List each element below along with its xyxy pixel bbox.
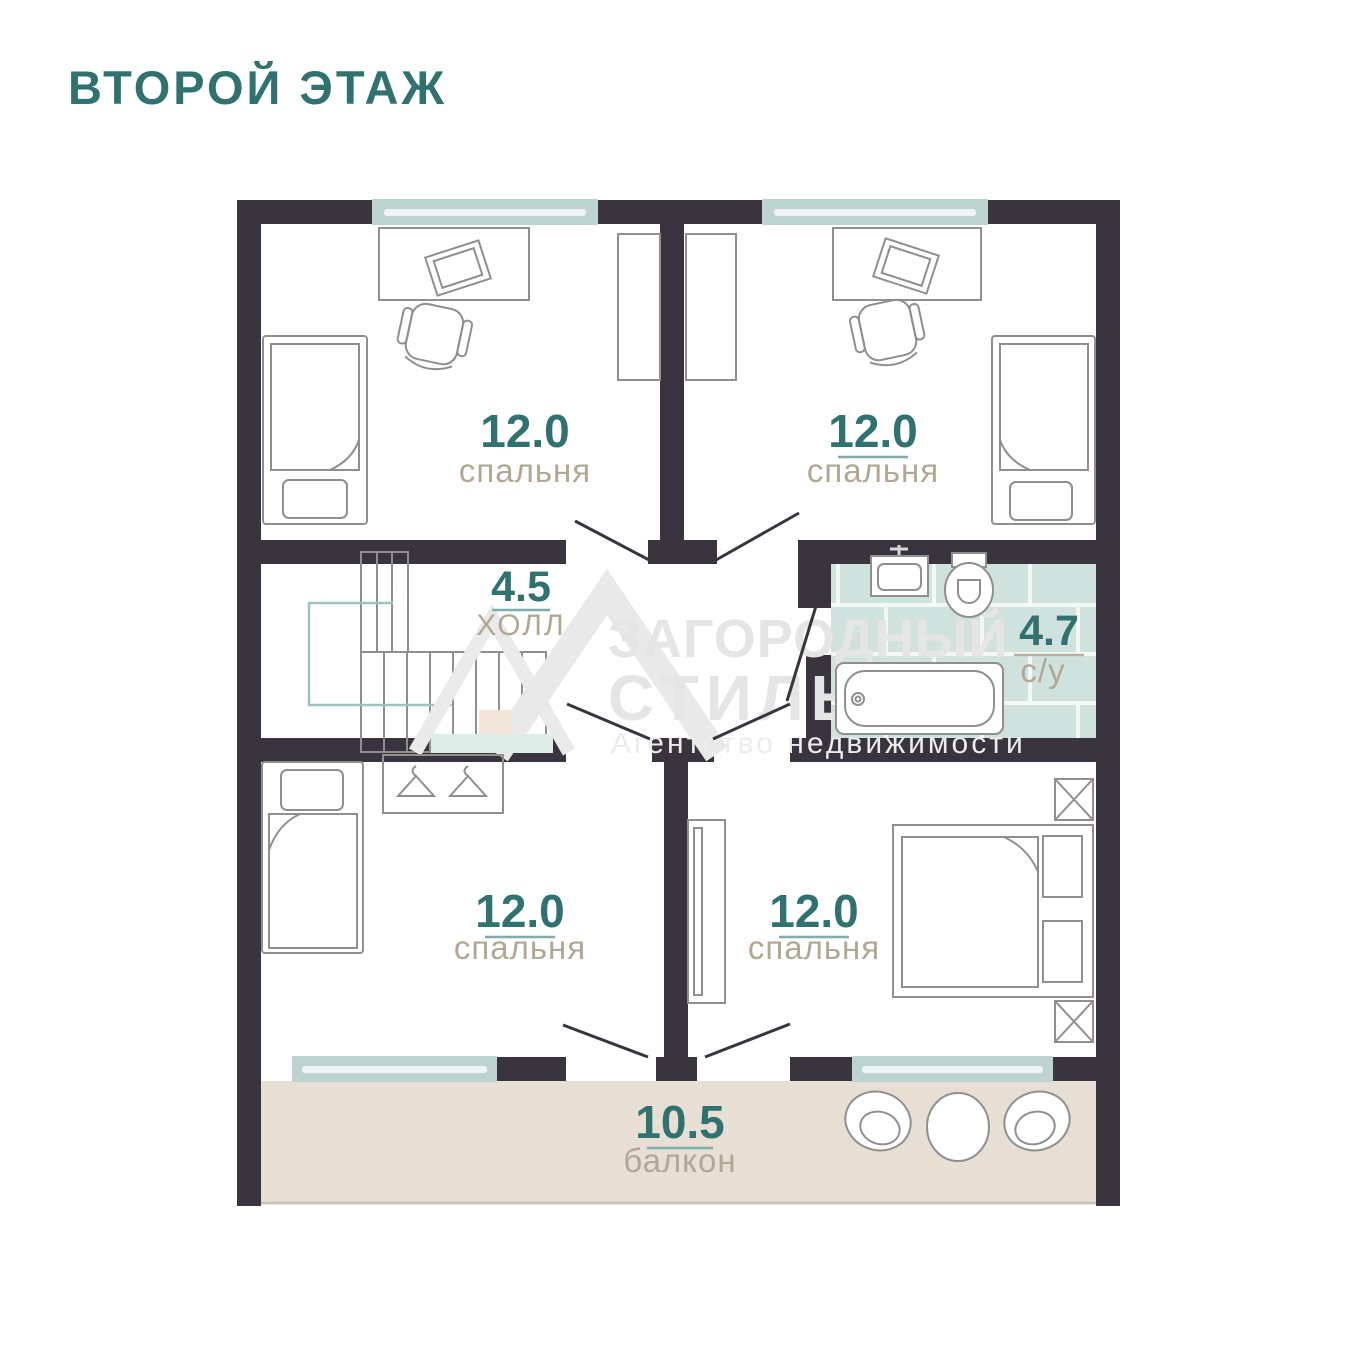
bedroom-bottom-right-furniture — [688, 779, 1093, 1042]
watermark-brand-line1: ЗАГОРОДНЫЙ — [608, 608, 1008, 669]
hanger-rack-icon — [383, 755, 503, 813]
wall-bottom-middle — [664, 762, 688, 1058]
double-bed-icon — [893, 825, 1093, 997]
crossed-box-icon — [1055, 779, 1093, 820]
window-top-left — [372, 199, 598, 225]
bathtub-icon — [836, 663, 1003, 734]
balcony-table-icon — [927, 1093, 989, 1161]
door-balcony-right — [705, 1024, 790, 1057]
room-name-label: с/у — [1020, 652, 1065, 689]
watermark-base-shape — [431, 734, 553, 753]
office-chair-icon — [393, 299, 475, 375]
wardrobe-icon — [688, 820, 725, 1003]
wall-right — [1096, 200, 1120, 1206]
desk-icon — [379, 228, 529, 300]
door-balcony-left — [563, 1025, 648, 1057]
laptop-icon — [873, 238, 939, 293]
wall-top-middle-stub — [648, 540, 717, 564]
single-bed-icon — [262, 762, 363, 953]
door-top-right-bedroom — [716, 513, 799, 560]
window-bottom-left — [292, 1056, 497, 1082]
single-bed-icon — [992, 336, 1095, 524]
room-area-label: 4.7 — [1019, 607, 1079, 655]
room-name-label: спальня — [459, 452, 591, 489]
room-name-label: балкон — [623, 1142, 736, 1179]
label-bedroom-top-left: 12.0 спальня — [459, 405, 591, 489]
nightstand — [1043, 921, 1082, 982]
room-area-label: 12.0 — [828, 405, 918, 457]
window-top-right — [762, 199, 988, 225]
nightstand — [1043, 836, 1082, 897]
room-area-label: 4.5 — [491, 563, 551, 611]
label-bedroom-bottom-left: 12.0 спальня — [454, 885, 586, 966]
balcony-furniture — [838, 1083, 1078, 1161]
floor-plan-page: ВТОРОЙ ЭТАЖ — [0, 0, 1355, 1355]
label-hall: 4.5 ХОЛЛ — [476, 563, 565, 642]
laptop-icon — [425, 240, 491, 295]
room-name-label: спальня — [454, 929, 586, 966]
label-bedroom-top-right: 12.0 спальня — [807, 405, 939, 489]
room-area-label: 10.5 — [635, 1096, 725, 1148]
desk-icon — [833, 228, 981, 300]
room-area-label: 12.0 — [480, 405, 570, 457]
bedroom-bottom-left-furniture — [262, 755, 503, 953]
window-bottom-right — [852, 1056, 1053, 1082]
door-top-left-bedroom — [575, 521, 653, 562]
room-name-label: спальня — [748, 929, 880, 966]
watermark-brand-line2: СТИЛЬ — [608, 662, 864, 734]
toilet-icon — [945, 553, 993, 617]
single-bed-icon — [263, 336, 367, 524]
office-chair-icon — [848, 295, 930, 371]
label-bedroom-bottom-right: 12.0 спальня — [748, 885, 880, 966]
wall-left — [237, 200, 261, 1206]
room-name-label: ХОЛЛ — [476, 609, 565, 642]
wardrobe-icon — [618, 234, 660, 380]
label-balcony: 10.5 балкон — [623, 1096, 736, 1179]
stairs-direction-arrow — [309, 603, 450, 712]
crossed-box-icon — [1055, 1001, 1093, 1042]
wall-bathroom-corner — [798, 564, 831, 608]
wall-top-middle — [660, 224, 684, 540]
wardrobe-icon — [686, 234, 736, 380]
page-title: ВТОРОЙ ЭТАЖ — [68, 61, 447, 114]
floor-plan-svg: ВТОРОЙ ЭТАЖ — [0, 0, 1355, 1355]
room-name-label: спальня — [807, 452, 939, 489]
